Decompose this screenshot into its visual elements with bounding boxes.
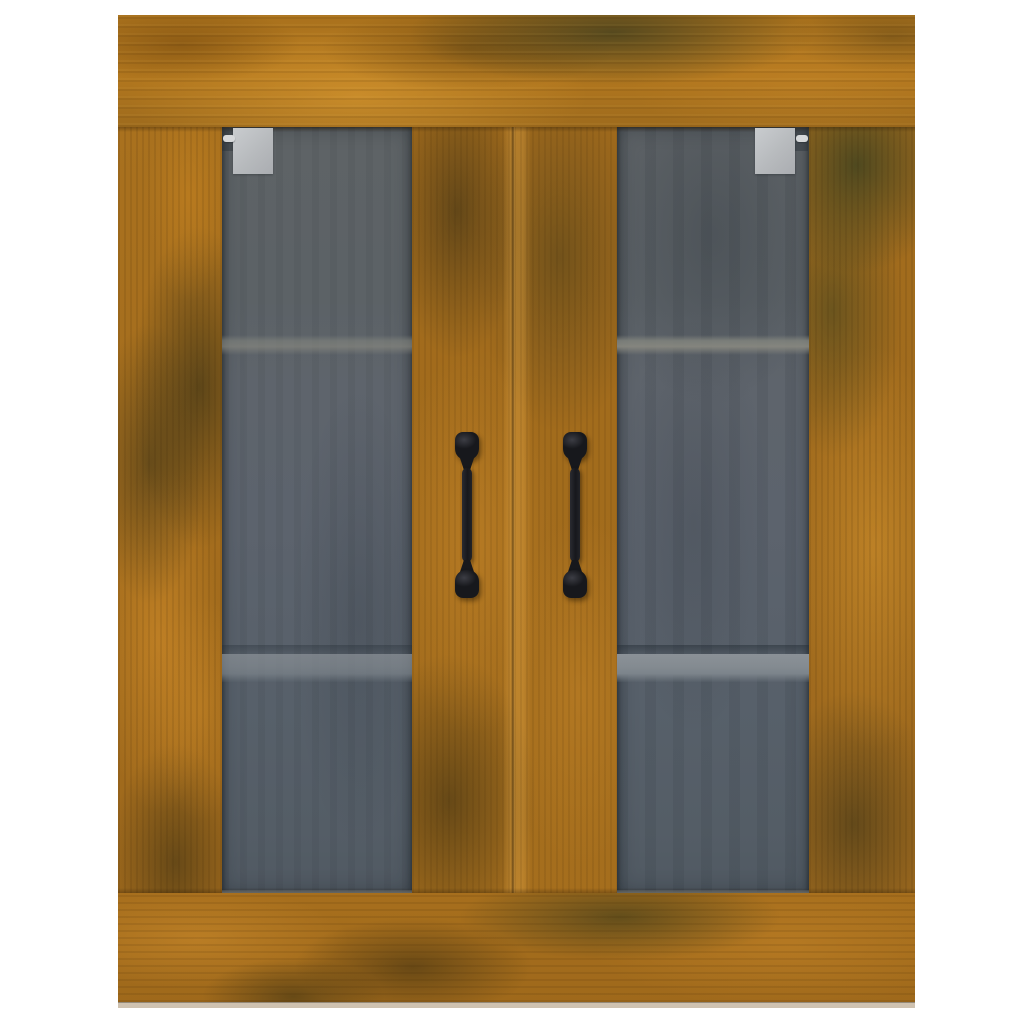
- right-door-glass-panel: [617, 127, 809, 893]
- lower-shelf-shadow: [617, 645, 809, 654]
- upper-shelf-through-glass: [222, 335, 412, 355]
- handle-stem: [462, 468, 472, 562]
- right-door-handle: [562, 432, 588, 598]
- bottom-rail-shadow: [118, 888, 915, 893]
- left-door-glass-panel: [222, 127, 412, 893]
- handle-bottom-cap: [563, 570, 587, 598]
- door-gap-seam: [511, 127, 515, 893]
- right-hinge-pin: [796, 135, 808, 142]
- left-hinge-plate: [233, 128, 273, 174]
- cabinet-bottom-rail: [118, 893, 915, 1002]
- upper-shelf-through-glass: [617, 335, 809, 355]
- handle-top-cap: [455, 432, 479, 460]
- left-hinge-pin: [223, 135, 235, 142]
- right-hinge-plate: [755, 128, 795, 174]
- cabinet-left-stile: [118, 127, 222, 893]
- handle-top-cap: [563, 432, 587, 460]
- lower-shelf-shadow: [222, 645, 412, 654]
- lower-shelf-through-glass: [617, 654, 809, 682]
- handle-bottom-cap: [455, 570, 479, 598]
- cabinet-right-stile: [809, 127, 915, 893]
- left-door-handle: [454, 432, 480, 598]
- handle-stem: [570, 468, 580, 562]
- lower-shelf-through-glass: [222, 654, 412, 682]
- cabinet-bottom-edge: [118, 1002, 915, 1008]
- product-photo: [0, 0, 1024, 1024]
- cabinet-top-rail: [118, 15, 915, 127]
